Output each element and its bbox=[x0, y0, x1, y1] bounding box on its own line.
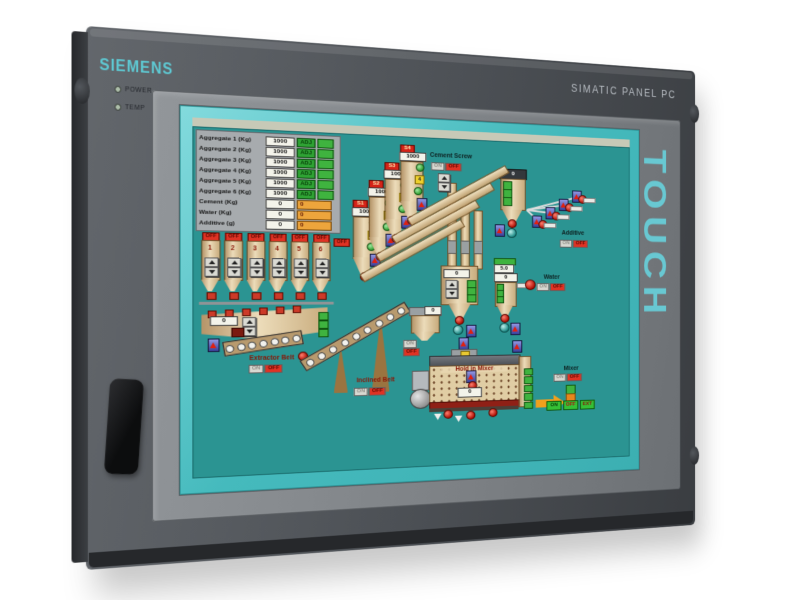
aggregate-bin-1: OFF 1 bbox=[201, 232, 221, 306]
extractor-gate bbox=[293, 306, 301, 314]
dosing-pipe bbox=[557, 214, 569, 220]
bin-number: 4 bbox=[269, 246, 286, 253]
level-cell bbox=[467, 294, 476, 302]
bin-support-rail bbox=[199, 302, 334, 305]
temp-led-label: TEMP bbox=[125, 104, 145, 112]
cement-screw-label: Cement Screw bbox=[421, 152, 481, 161]
aggregate-bin-3: OFF 3 bbox=[246, 233, 265, 306]
power-led-label: POWER bbox=[125, 86, 152, 94]
aggregate-bin-6: OFF 6 bbox=[312, 234, 330, 305]
setpoint-field[interactable]: 1000 bbox=[266, 188, 295, 198]
row-label: Aggregate 2 (Kg) bbox=[199, 145, 263, 153]
setpoint-field[interactable]: 1000 bbox=[266, 146, 295, 157]
bin-gate bbox=[296, 292, 305, 300]
down-arrow-button[interactable] bbox=[272, 268, 286, 278]
actual-value-cell: 0 bbox=[297, 200, 332, 210]
bin-hopper bbox=[246, 280, 263, 292]
bin-number: 2 bbox=[224, 245, 241, 252]
bin-gate bbox=[207, 292, 217, 300]
bin-hopper bbox=[269, 280, 286, 291]
water-on-button[interactable]: ON bbox=[537, 283, 550, 291]
setpoint-field[interactable]: 1000 bbox=[266, 157, 295, 168]
adj-button[interactable]: ADJ bbox=[297, 158, 316, 168]
motor-icon bbox=[466, 325, 476, 338]
up-arrow-button[interactable] bbox=[250, 258, 264, 268]
row-label: Aggregate 6 (Kg) bbox=[199, 188, 263, 196]
up-arrow-button[interactable] bbox=[204, 257, 218, 267]
up-arrow-button[interactable] bbox=[242, 317, 256, 327]
status-cell bbox=[317, 138, 333, 148]
dosing-pipe bbox=[583, 198, 595, 204]
bin-gate bbox=[252, 292, 262, 300]
status-cell bbox=[317, 179, 333, 189]
status-cell bbox=[317, 159, 333, 169]
up-arrow-button[interactable] bbox=[445, 280, 457, 289]
aggregate-bin-5: OFF 5 bbox=[291, 234, 310, 306]
water-value-field: 0 bbox=[494, 273, 518, 282]
mixer-on-button[interactable]: ON bbox=[554, 374, 567, 382]
simatic-panel-pc: SIEMENS POWER TEMP SIMATIC PANEL PC TOUC… bbox=[86, 26, 695, 570]
adj-button[interactable]: ADJ bbox=[297, 168, 316, 178]
extractor-gate bbox=[242, 309, 251, 317]
feed-hopper-on-button[interactable]: ON bbox=[403, 340, 417, 348]
extractor-level-cell bbox=[318, 320, 328, 328]
row-label: Aggregate 3 (Kg) bbox=[199, 156, 263, 164]
mixer-level-column bbox=[524, 368, 533, 409]
setpoint-field[interactable]: 0 bbox=[266, 220, 295, 230]
discharge-arrow-icon bbox=[434, 414, 442, 421]
bins-master-off-button[interactable]: OFF bbox=[334, 238, 350, 247]
mixer-onoff: ONOFF bbox=[554, 373, 582, 382]
aggregate-bin-4: OFF 4 bbox=[269, 233, 288, 305]
up-arrow-button[interactable] bbox=[438, 173, 450, 182]
discharge-valve bbox=[444, 410, 453, 419]
extractor-onoff: ONOFF bbox=[249, 364, 283, 373]
up-arrow-button[interactable] bbox=[315, 259, 328, 268]
status-cell bbox=[317, 169, 333, 179]
mixer-command-bar: ON OFF EXT bbox=[546, 400, 594, 411]
down-arrow-button[interactable] bbox=[250, 267, 264, 277]
adj-button[interactable]: ADJ bbox=[297, 189, 316, 199]
belt-tower bbox=[334, 352, 348, 393]
additive-onoff: ONOFF bbox=[560, 240, 588, 248]
status-cell bbox=[317, 149, 333, 159]
up-arrow-button[interactable] bbox=[294, 258, 307, 268]
mixer-label: Mixer bbox=[555, 365, 587, 372]
aggregate-bin-2: OFF 2 bbox=[224, 233, 243, 306]
additive-on-button[interactable]: ON bbox=[560, 240, 573, 248]
down-arrow-button[interactable] bbox=[294, 268, 307, 278]
chassis-top-edge bbox=[90, 28, 693, 79]
silo-run-indicator bbox=[414, 187, 423, 195]
setpoint-field[interactable]: 0 bbox=[266, 209, 295, 219]
water-onoff: ONOFF bbox=[537, 283, 566, 291]
actual-value-cell: 0 bbox=[297, 210, 332, 220]
mixer-value-field: 0 bbox=[458, 387, 482, 398]
level-cell bbox=[503, 197, 512, 206]
actual-value-cell: 0 bbox=[297, 220, 332, 230]
aggregate-hopper-value[interactable]: 0 bbox=[444, 269, 470, 278]
extractor-on-button[interactable]: ON bbox=[249, 365, 264, 374]
down-arrow-button[interactable] bbox=[315, 268, 328, 277]
batch-table: Aggregate 1 (Kg) 1000 ADJ Aggregate 2 (K… bbox=[196, 129, 341, 234]
dosing-pipe bbox=[570, 206, 582, 212]
inclined-belt-label: Inclined Belt bbox=[338, 376, 413, 384]
feed-hopper-off-button[interactable]: OFF bbox=[403, 348, 419, 356]
feed-hopper-value[interactable]: 0 bbox=[424, 306, 441, 315]
bin-hopper bbox=[224, 280, 241, 292]
power-led: POWER bbox=[115, 86, 152, 95]
additive-label: Additive bbox=[555, 230, 590, 237]
inclined-off-button[interactable]: OFF bbox=[369, 387, 386, 396]
model-label: SIMATIC PANEL PC bbox=[571, 81, 676, 101]
extractor-gate bbox=[259, 308, 267, 316]
right-mount-knob-top bbox=[690, 104, 699, 123]
cmd-ext-button[interactable]: EXT bbox=[580, 400, 595, 410]
down-arrow-button[interactable] bbox=[438, 182, 450, 191]
water-valve bbox=[525, 280, 536, 291]
bin-gate bbox=[274, 292, 283, 300]
motor-icon bbox=[512, 340, 522, 353]
extractor-level-cell bbox=[318, 312, 328, 320]
discharge-valve bbox=[466, 411, 475, 420]
extractor-level-cell bbox=[318, 329, 328, 338]
bin-hopper bbox=[201, 280, 218, 292]
row-label: Water (Kg) bbox=[199, 209, 263, 216]
mixer-off-button[interactable]: OFF bbox=[567, 373, 582, 381]
hopper-valve bbox=[455, 316, 464, 325]
bin-number: 3 bbox=[246, 245, 263, 252]
discharge-arrow-icon bbox=[455, 416, 463, 423]
up-arrow-button[interactable] bbox=[227, 258, 241, 268]
bezel-handle[interactable] bbox=[104, 378, 144, 474]
down-arrow-button[interactable] bbox=[204, 267, 218, 277]
motor-icon bbox=[495, 224, 505, 237]
water-setpoint-field[interactable]: 5.0 bbox=[494, 264, 514, 273]
additive-off-button[interactable]: OFF bbox=[573, 240, 588, 248]
temp-led: TEMP bbox=[115, 104, 145, 113]
bin-number: 5 bbox=[291, 246, 308, 253]
level-cell bbox=[497, 296, 504, 303]
hopper-valve bbox=[500, 314, 509, 323]
water-label: Water bbox=[538, 274, 566, 280]
photo-background: SIEMENS POWER TEMP SIMATIC PANEL PC TOUC… bbox=[0, 0, 800, 600]
bin-number: 6 bbox=[312, 246, 328, 253]
row-label: Aggregate 4 (Kg) bbox=[199, 167, 263, 175]
chassis-left-side bbox=[72, 31, 88, 563]
cement-screw-onoff: ONOFF bbox=[431, 162, 462, 171]
bin-hopper bbox=[312, 280, 328, 291]
bin-number: 1 bbox=[201, 245, 218, 252]
extractor-gate bbox=[276, 307, 284, 315]
hopper-valve bbox=[508, 219, 517, 228]
adj-button[interactable]: ADJ bbox=[297, 148, 316, 158]
pump-ball bbox=[507, 228, 517, 238]
down-arrow-button[interactable] bbox=[227, 267, 241, 277]
pump-ball bbox=[453, 325, 463, 335]
row-label: Aggregate 1 (Kg) bbox=[199, 135, 263, 144]
hmi-display: Aggregate 1 (Kg) 1000 ADJ Aggregate 2 (K… bbox=[192, 117, 629, 478]
setpoint-field[interactable]: 0 bbox=[266, 199, 295, 209]
cmd-on-button[interactable]: ON bbox=[546, 401, 561, 411]
silo-group-number: 4 bbox=[415, 175, 425, 184]
inclined-on-button[interactable]: ON bbox=[354, 388, 368, 397]
temp-led-dot bbox=[115, 104, 122, 111]
up-arrow-button[interactable] bbox=[272, 258, 286, 268]
right-mount-knob-bottom bbox=[690, 446, 699, 465]
inclined-onoff: ONOFF bbox=[354, 387, 386, 396]
bin-gate bbox=[229, 292, 239, 300]
adj-button[interactable]: ADJ bbox=[297, 137, 316, 147]
power-led-dot bbox=[115, 86, 122, 93]
adj-button[interactable]: ADJ bbox=[297, 179, 316, 189]
siemens-logo: SIEMENS bbox=[99, 57, 173, 79]
silo-run-indicator bbox=[416, 163, 425, 172]
extractor-off-button[interactable]: OFF bbox=[265, 364, 283, 373]
feed-hopper-body bbox=[411, 315, 440, 333]
motor-icon bbox=[510, 323, 520, 335]
row-label: Additive (g) bbox=[199, 220, 263, 227]
feed-pipe bbox=[474, 210, 483, 269]
status-cell bbox=[317, 190, 333, 200]
left-mount-knob bbox=[74, 77, 89, 104]
cement-screw-on-button[interactable]: ON bbox=[431, 162, 445, 171]
cmd-off-button[interactable]: OFF bbox=[563, 400, 578, 410]
down-arrow-button[interactable] bbox=[445, 289, 457, 298]
bin-gate bbox=[317, 292, 326, 299]
setpoint-field[interactable]: 1000 bbox=[266, 167, 295, 178]
mixer-motor bbox=[410, 389, 431, 410]
row-label: Aggregate 5 (Kg) bbox=[199, 177, 263, 185]
dosing-pipe bbox=[544, 223, 556, 229]
setpoint-field[interactable]: 1000 bbox=[266, 136, 295, 147]
touchscreen[interactable]: Aggregate 1 (Kg) 1000 ADJ Aggregate 2 (K… bbox=[180, 105, 640, 495]
setpoint-field[interactable]: 1000 bbox=[266, 178, 295, 188]
row-label: Cement (Kg) bbox=[199, 199, 263, 207]
water-off-button[interactable]: OFF bbox=[550, 283, 565, 291]
extractor-value-field[interactable]: 0 bbox=[210, 316, 238, 326]
bin-hopper bbox=[291, 280, 308, 291]
cement-screw-off-button[interactable]: OFF bbox=[446, 163, 462, 172]
pump-ball bbox=[499, 323, 509, 333]
motor-icon bbox=[208, 338, 220, 352]
extractor-chute bbox=[232, 328, 245, 338]
discharge-valve bbox=[488, 408, 497, 417]
